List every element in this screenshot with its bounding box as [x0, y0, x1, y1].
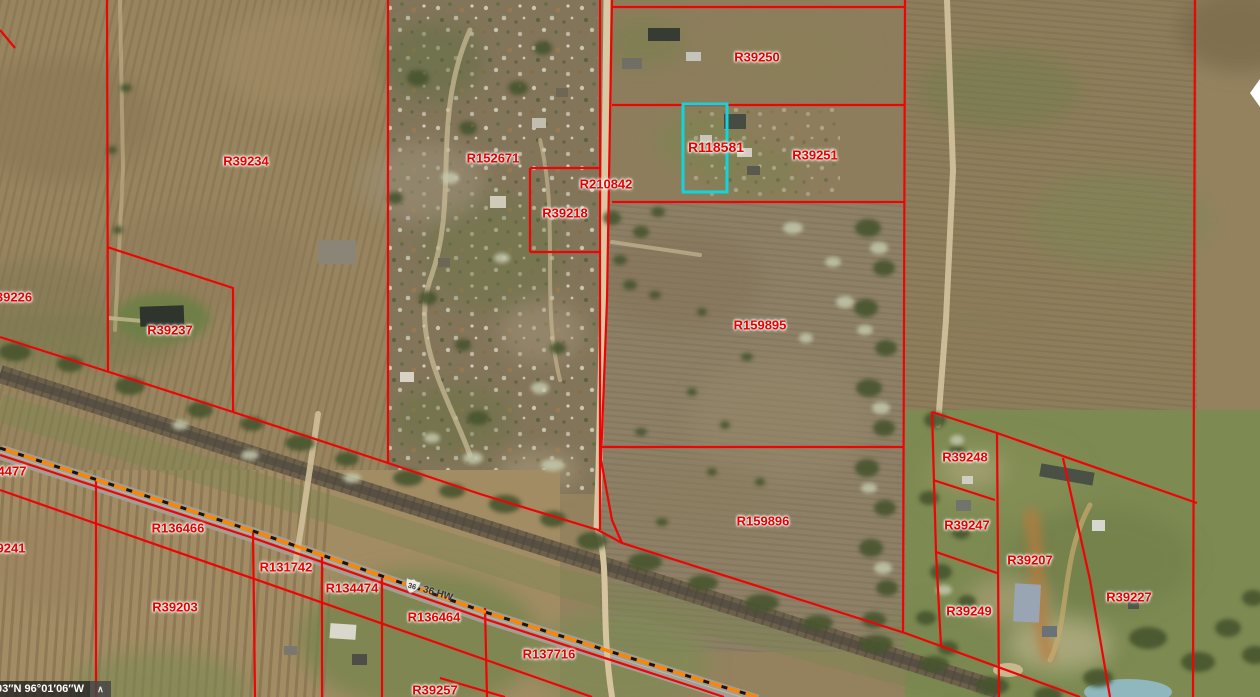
map-canvas[interactable]: R39250R118581R39251R152671R39234R210842R… [0, 0, 1260, 697]
parcel-label-R39218[interactable]: R39218 [542, 206, 588, 221]
parcel-label-4477[interactable]: 4477 [0, 464, 26, 479]
parcel-label-R39249[interactable]: R39249 [946, 604, 992, 619]
coordinate-readout: ’03″N 96°01′06″W [0, 681, 90, 697]
parcel-label-R159895[interactable]: R159895 [734, 318, 787, 333]
parcel-label-R39251[interactable]: R39251 [792, 148, 838, 163]
parcel-label-9241[interactable]: 9241 [0, 541, 25, 556]
parcel-label-R39227[interactable]: R39227 [1106, 590, 1152, 605]
parcel-label-R137716[interactable]: R137716 [523, 647, 576, 662]
parcel-label-R39250[interactable]: R39250 [734, 50, 780, 65]
parcel-label-39226[interactable]: 39226 [0, 290, 32, 305]
parcel-label-R39247[interactable]: R39247 [944, 518, 990, 533]
parcel-label-R210842[interactable]: R210842 [580, 177, 633, 192]
parcel-label-R159896[interactable]: R159896 [737, 514, 790, 529]
status-bar: ’03″N 96°01′06″W ∧ [0, 681, 111, 697]
parcel-label-R118581[interactable]: R118581 [688, 139, 744, 155]
parcel-label-R134474[interactable]: R134474 [326, 581, 379, 596]
parcel-label-R39234[interactable]: R39234 [223, 154, 269, 169]
parcel-label-R39257[interactable]: R39257 [412, 683, 458, 697]
parcel-label-R39248[interactable]: R39248 [942, 450, 988, 465]
parcel-label-R39207[interactable]: R39207 [1007, 553, 1053, 568]
parcel-label-R136464[interactable]: R136464 [408, 610, 461, 625]
parcel-label-R39203[interactable]: R39203 [152, 600, 198, 615]
parcel-label-R131742[interactable]: R131742 [260, 560, 313, 575]
parcel-label-R39237[interactable]: R39237 [147, 323, 193, 338]
parcel-label-R152671[interactable]: R152671 [467, 151, 520, 166]
expand-statusbar-button[interactable]: ∧ [90, 681, 111, 697]
parcel-label-R136466[interactable]: R136466 [152, 521, 205, 536]
parcel-labels-layer: R39250R118581R39251R152671R39234R210842R… [0, 0, 1260, 697]
